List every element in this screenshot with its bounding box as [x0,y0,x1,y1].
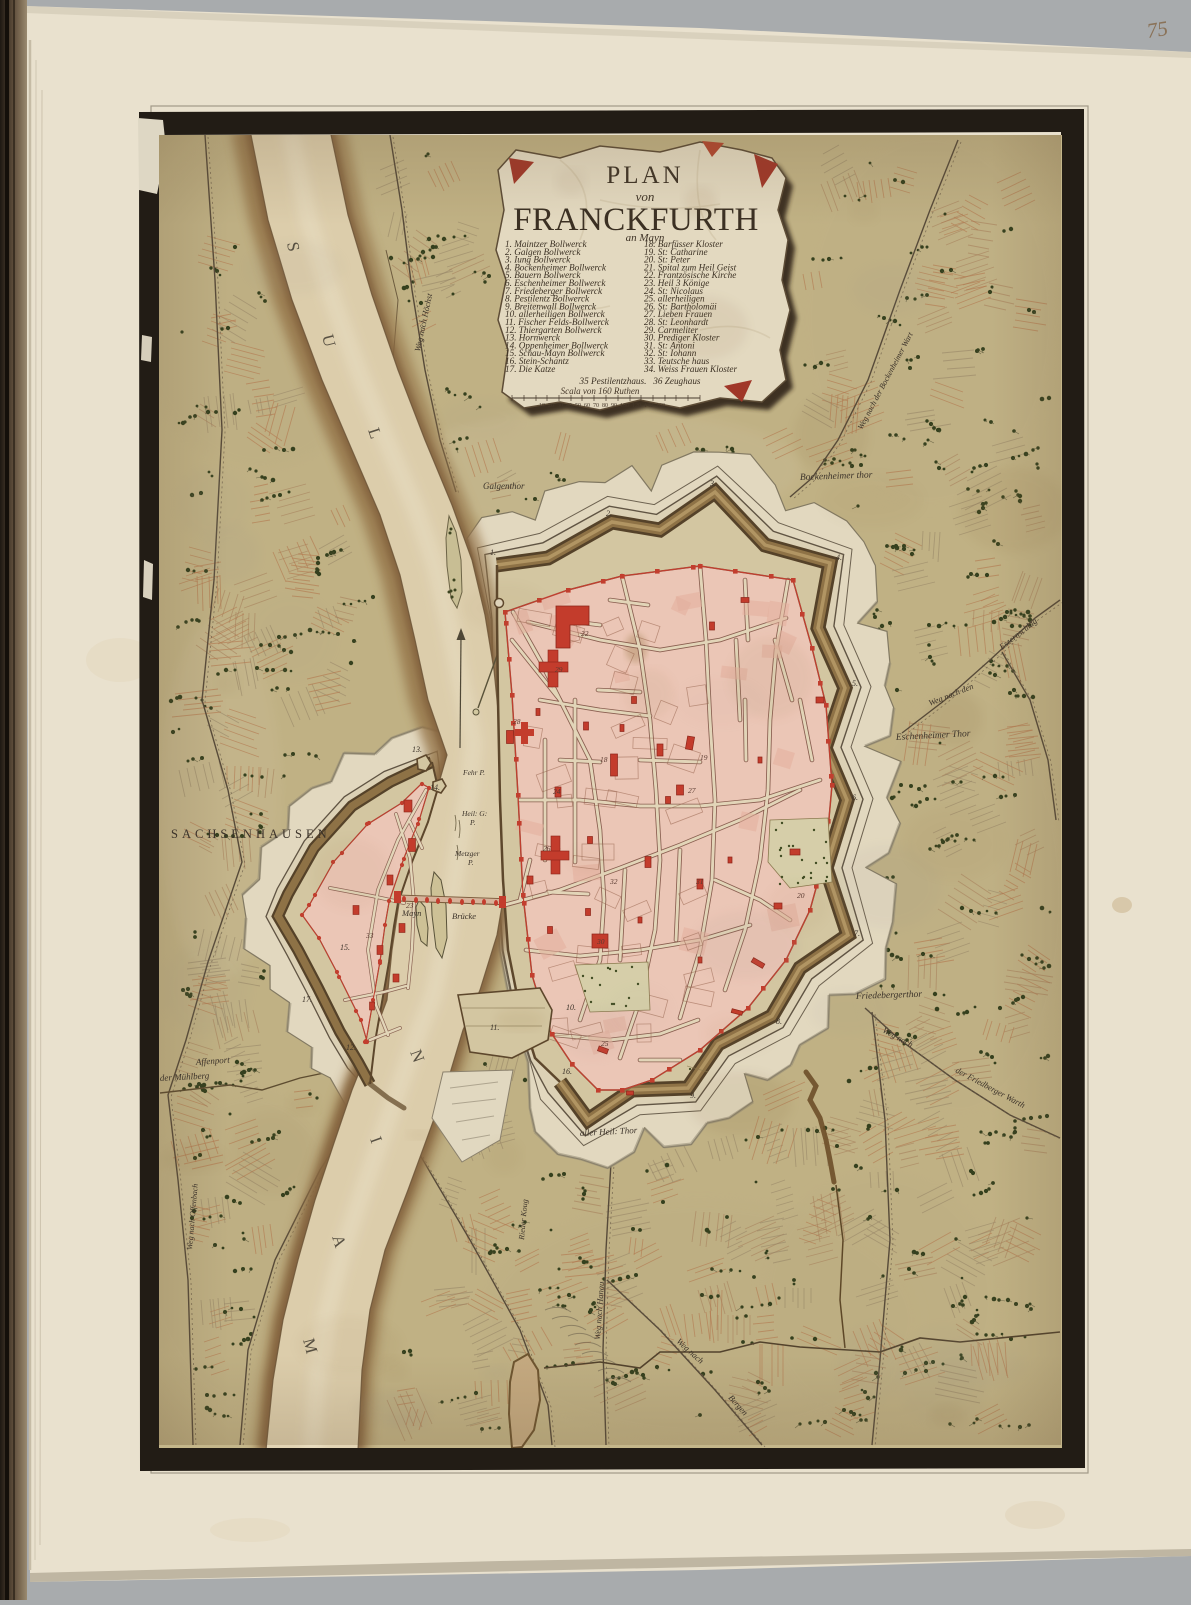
svg-text:18: 18 [600,755,608,764]
svg-text:1.: 1. [490,548,496,557]
svg-text:20: 20 [797,891,805,900]
svg-text:P.: P. [469,818,476,827]
svg-text:3.: 3. [709,479,716,488]
svg-text:19: 19 [700,753,708,762]
svg-text:SACHSENHAUSEN: SACHSENHAUSEN [171,827,331,841]
svg-text:2.: 2. [606,509,612,518]
svg-text:30: 30 [596,937,605,946]
svg-text:6.: 6. [852,793,858,802]
svg-text:32: 32 [609,877,618,886]
svg-text:27: 27 [688,786,696,795]
svg-text:P.: P. [467,858,474,867]
svg-text:25: 25 [601,1039,609,1048]
svg-text:23: 23 [406,901,414,910]
svg-text:10.: 10. [566,1003,576,1012]
svg-text:28: 28 [513,717,521,726]
svg-text:24: 24 [553,787,561,796]
svg-text:15.: 15. [340,943,350,952]
svg-text:5.: 5. [852,679,858,688]
svg-text:33: 33 [365,931,374,940]
svg-text:8.: 8. [776,1017,782,1026]
svg-text:31: 31 [695,877,704,886]
svg-text:9.: 9. [690,1091,696,1100]
svg-text:Brücke: Brücke [452,911,476,921]
svg-text:Fehr P.: Fehr P. [462,768,485,777]
svg-text:Galgenthor: Galgenthor [483,481,525,491]
svg-text:29: 29 [555,665,563,674]
svg-text:75: 75 [1145,16,1169,43]
svg-text:14.: 14. [430,783,440,792]
svg-text:Metzger: Metzger [454,849,480,858]
svg-text:7.: 7. [854,929,860,938]
svg-text:16.: 16. [562,1067,572,1076]
svg-text:11.: 11. [490,1023,499,1032]
svg-text:Heil: G:: Heil: G: [461,809,487,818]
svg-text:12.: 12. [346,1043,356,1052]
svg-text:22: 22 [581,629,589,638]
svg-text:13.: 13. [412,745,422,754]
svg-text:17.: 17. [302,995,312,1004]
svg-text:26: 26 [543,844,551,853]
svg-text:4.: 4. [836,553,842,562]
